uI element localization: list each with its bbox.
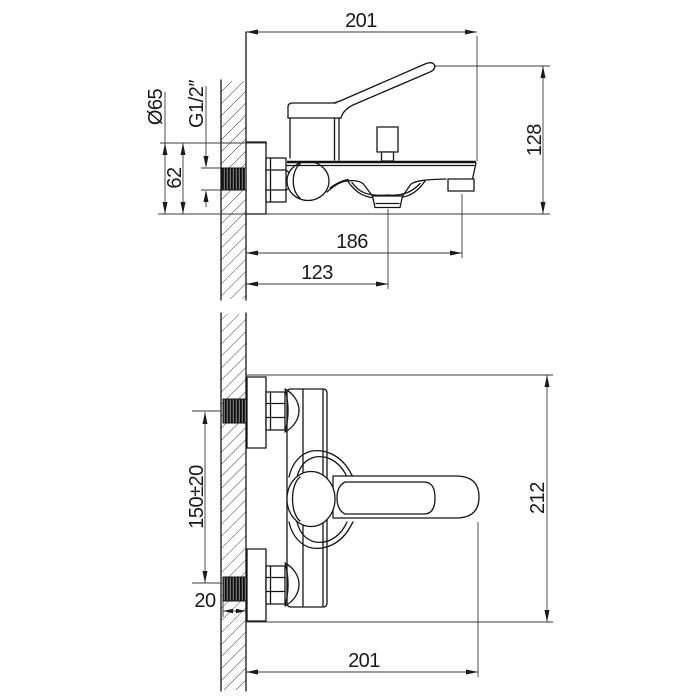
mixer-body-side [288, 103, 341, 160]
front-view: 212 150±20 20 201 [186, 313, 553, 691]
dim-label-150pm20: 150±20 [186, 465, 208, 529]
lever-handle-side [334, 63, 435, 118]
dimension-escutcheon-height: 62 [164, 143, 186, 214]
threaded-supply-pipe [223, 577, 246, 601]
dim-label-20: 20 [194, 590, 216, 612]
dimension-shower-outlet-reach: 123 [246, 262, 388, 287]
escutcheon-plate [247, 377, 266, 448]
technical-drawing-page: 201 128 Ø65 62 G1/2″ [0, 0, 700, 700]
dim-label-201-top: 201 [345, 10, 377, 32]
dim-label-201-bottom: 201 [348, 650, 380, 672]
dimension-supply-spacing: 150±20 [186, 412, 208, 583]
diverter-knob [377, 127, 398, 161]
dimension-span-201-bottom: 201 [246, 650, 478, 675]
side-view: 201 128 Ø65 62 G1/2″ [145, 10, 550, 300]
threaded-supply-pipe [221, 168, 246, 190]
dim-label-g12: G1/2″ [186, 80, 208, 128]
spout-end-circle [287, 472, 335, 527]
spout-underside [327, 163, 476, 208]
shower-diverter-outlet [373, 196, 403, 208]
hex-nut [266, 392, 285, 430]
dim-label-186: 186 [336, 231, 368, 253]
hex-nut [266, 158, 286, 202]
dimension-overall-height: 212 [527, 375, 550, 622]
dim-label-62: 62 [164, 167, 186, 189]
dimension-spout-reach: 186 [246, 231, 462, 256]
threaded-supply-pipe [223, 399, 246, 423]
dimension-span-201-top: 201 [246, 10, 477, 35]
dim-label-212: 212 [527, 482, 549, 514]
escutcheon-plate [246, 142, 266, 214]
hex-nut [266, 566, 285, 604]
lever-handle-front [333, 476, 479, 518]
faucet-installation-drawing: 201 128 Ø65 62 G1/2″ [0, 0, 700, 700]
dim-label-128: 128 [524, 124, 546, 156]
dimension-height-128: 128 [524, 66, 546, 214]
dimension-escutcheon-diameter: Ø65 [145, 88, 168, 214]
dim-label-o65: Ø65 [145, 88, 167, 125]
dim-label-123: 123 [301, 262, 333, 284]
escutcheon-plate [247, 549, 266, 621]
wall-hatch-section [222, 314, 247, 690]
spout-outlet [448, 179, 474, 191]
